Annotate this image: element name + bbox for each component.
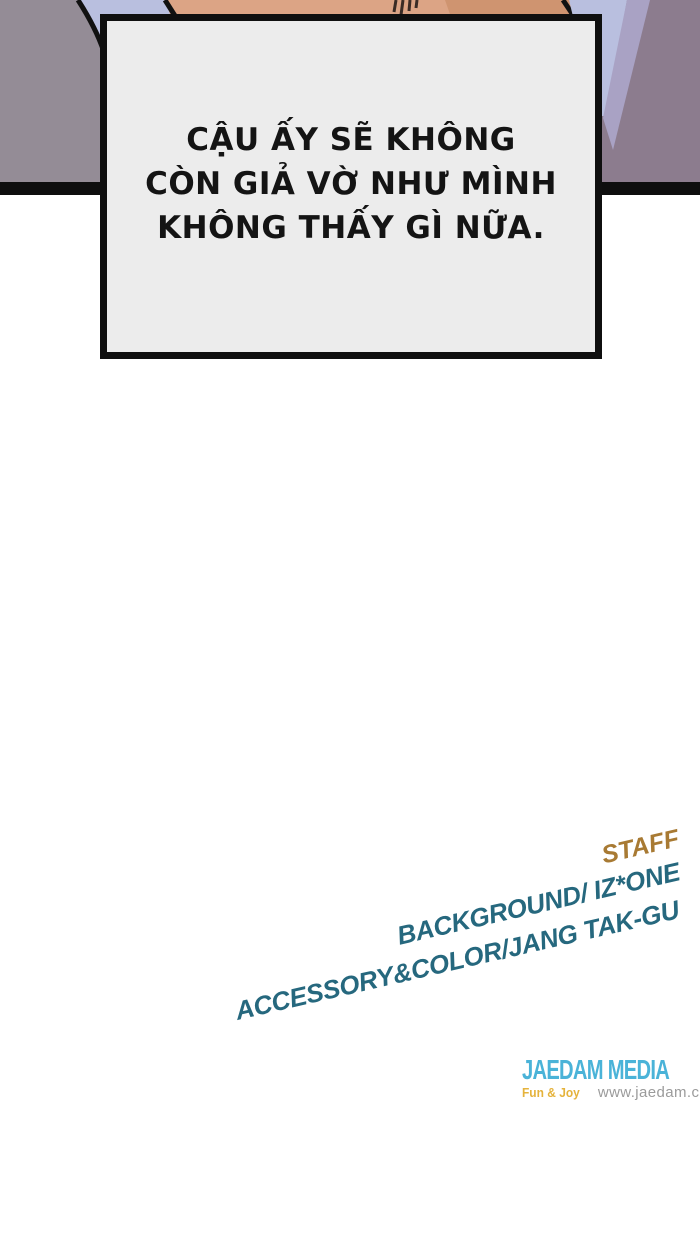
publisher-name: JAEDAM MEDIA: [522, 1057, 669, 1083]
speech-text: CẬU ẤY SẼ KHÔNG CÒN GIẢ VỜ NHƯ MÌNH KHÔN…: [107, 21, 595, 250]
speech-bubble: CẬU ẤY SẼ KHÔNG CÒN GIẢ VỜ NHƯ MÌNH KHÔN…: [100, 14, 602, 359]
publisher-tagline: Fun & Joy: [522, 1085, 580, 1100]
publisher-website: www.jaedam.com: [598, 1084, 700, 1101]
speech-line-3: KHÔNG THẤY GÌ NỮA.: [107, 206, 595, 250]
publisher-subline: Fun & Joy www.jaedam.com: [522, 1084, 700, 1101]
comic-page: CẬU ẤY SẼ KHÔNG CÒN GIẢ VỜ NHƯ MÌNH KHÔN…: [0, 0, 700, 1247]
speech-line-1: CẬU ẤY SẼ KHÔNG: [107, 118, 595, 162]
publisher-logo: JAEDAM MEDIA Fun & Joy www.jaedam.com: [522, 1057, 700, 1101]
speech-line-2: CÒN GIẢ VỜ NHƯ MÌNH: [107, 162, 595, 206]
